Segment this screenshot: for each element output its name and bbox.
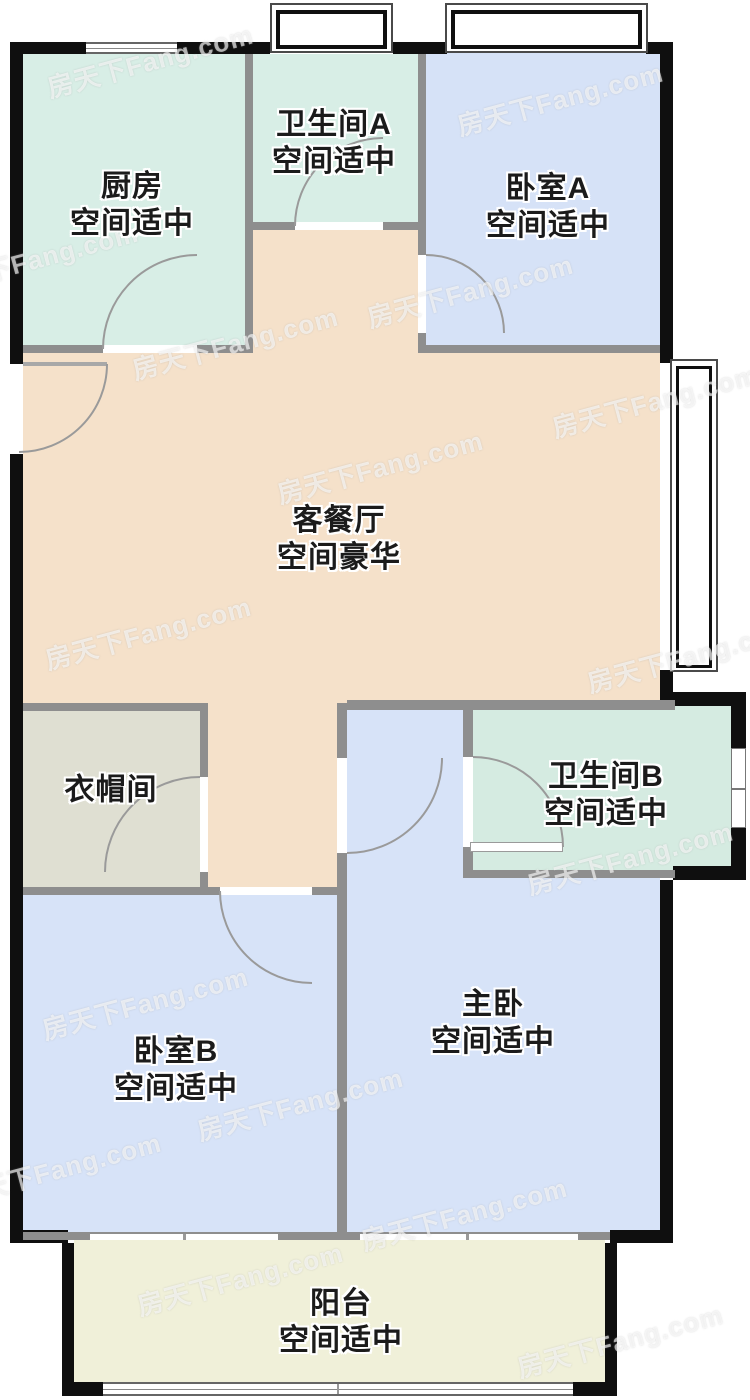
exterior-wall-right (660, 880, 673, 1243)
entrance-door-leaf (23, 362, 107, 366)
interior-wall-closet-right (200, 872, 208, 887)
interior-wall-batha-bottom (253, 222, 295, 230)
door-opening-entrance (10, 364, 23, 454)
interior-wall-kitchen-bottom (23, 345, 103, 353)
interior-wall-bathb-left (463, 710, 473, 757)
interior-wall-closet-top (23, 703, 208, 711)
interior-wall-kitchen-right (245, 54, 253, 345)
room-name: 客餐厅 (277, 502, 401, 539)
interior-wall-bedrooma-bottom (418, 345, 660, 353)
exterior-wall-bathb-bottom (673, 866, 746, 880)
exterior-wall-balcony-right (605, 1243, 617, 1396)
exterior-wall-master-bottom (610, 1230, 673, 1243)
room-label-balcony: 阳台 空间适中 (279, 1285, 403, 1359)
door-opening-closet (200, 777, 208, 872)
floor-corridor (208, 703, 347, 895)
door-opening-bedroom-b (220, 887, 312, 895)
room-name: 主卧 (431, 986, 555, 1023)
room-grade: 空间适中 (114, 1070, 238, 1107)
bedroom-b-balcony-window (90, 1232, 278, 1240)
room-name: 卫生间B (544, 758, 668, 795)
exterior-wall-left (10, 454, 23, 1243)
window-frame (451, 10, 642, 49)
room-grade: 空间适中 (486, 207, 610, 244)
interior-wall-master-left (337, 853, 347, 1232)
interior-wall-batha-bottom (383, 222, 418, 230)
room-label-bathroom-b: 卫生间B 空间适中 (544, 758, 668, 832)
window-mullion (337, 1384, 339, 1394)
window-mullion (466, 1234, 469, 1240)
room-grade: 空间适中 (544, 795, 668, 832)
room-label-living-dining: 客餐厅 空间豪华 (277, 502, 401, 576)
room-name: 卧室B (114, 1033, 238, 1070)
interior-wall-bedrooma-left (418, 333, 426, 345)
exterior-wall-top (393, 42, 447, 54)
interior-wall-master-top (347, 700, 675, 710)
exterior-wall-balcony-corner (62, 1382, 103, 1396)
interior-wall-bedrooma-left (418, 54, 426, 255)
bathroom-b-door-leaf (470, 842, 563, 852)
exterior-wall-right (660, 42, 673, 363)
room-label-kitchen: 厨房 空间适中 (70, 168, 194, 242)
room-grade: 空间适中 (279, 1322, 403, 1359)
window-glazing-line (732, 788, 745, 790)
room-label-master-bedroom: 主卧 空间适中 (431, 986, 555, 1060)
bathroom-b-window (731, 748, 746, 828)
room-label-bedroom-b: 卧室B 空间适中 (114, 1033, 238, 1107)
room-name: 衣帽间 (65, 772, 158, 809)
exterior-wall-balcony-corner (573, 1382, 617, 1396)
room-grade: 空间适中 (431, 1023, 555, 1060)
window-frame (276, 10, 387, 49)
bathroom-a-bay-window (270, 3, 393, 53)
exterior-wall-balcony-left (62, 1243, 74, 1396)
room-name: 阳台 (279, 1285, 403, 1322)
door-opening-master (337, 758, 347, 853)
interior-wall-closet-right (200, 703, 208, 777)
interior-wall-balcony-sill (23, 1232, 90, 1240)
floor-plan: 房天下Fang.com 房天下Fang.com 房天下Fang.com 房天下F… (0, 0, 750, 1400)
room-name: 卧室A (486, 170, 610, 207)
room-grade: 空间适中 (70, 205, 194, 242)
door-opening-bathroom-a (295, 222, 383, 230)
exterior-wall-left (10, 42, 23, 364)
window-mullion (183, 1234, 186, 1240)
interior-wall-balcony-sill (578, 1232, 610, 1240)
room-name: 厨房 (70, 168, 194, 205)
room-label-bathroom-a: 卫生间A 空间适中 (272, 106, 396, 180)
room-label-closet: 衣帽间 (65, 772, 158, 809)
room-name: 卫生间A (272, 106, 396, 143)
room-label-bedroom-a: 卧室A 空间适中 (486, 170, 610, 244)
room-grade: 空间适中 (272, 143, 396, 180)
interior-wall-master-left (337, 703, 347, 758)
bedroom-a-bay-window (445, 3, 648, 53)
door-opening-bathroom-b (463, 757, 473, 847)
exterior-wall-bathb-right (731, 702, 746, 748)
balcony-front-window (103, 1382, 573, 1396)
interior-wall-corridor-bottom (23, 887, 220, 895)
room-grade: 空间豪华 (277, 539, 401, 576)
